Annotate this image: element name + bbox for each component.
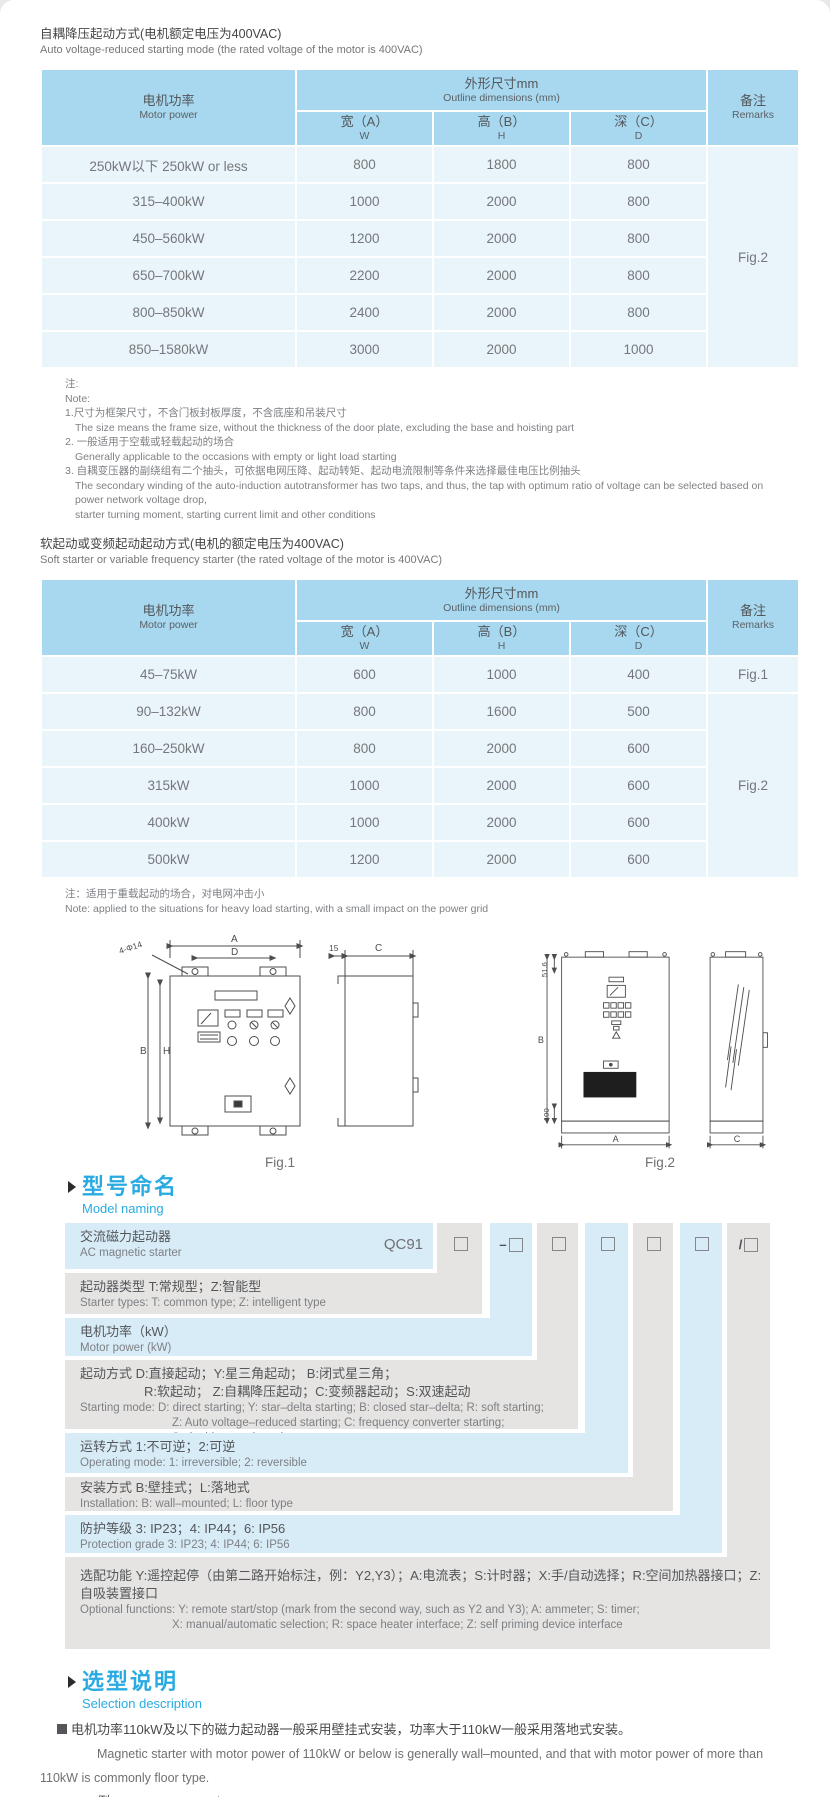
table-row: 250kW以下 250kW or less8001800800 Fig.2	[42, 147, 798, 182]
selection-description-heading: 选型说明 Selection description	[68, 1669, 792, 1712]
fig2-dim-516-label: 51.6	[540, 962, 549, 977]
code-box-square	[454, 1237, 468, 1251]
header-height: 高（B）H	[434, 622, 569, 655]
fig1-dim-h-label: H	[163, 1046, 170, 1057]
remark-fig2: Fig.2	[708, 694, 798, 877]
model-naming-title-zh: 型号命名	[82, 1174, 178, 1200]
fig1-caption: Fig.1	[110, 1155, 450, 1170]
fig2-caption: Fig.2	[510, 1155, 810, 1170]
table-row: 500kW12002000600	[42, 842, 798, 877]
naming-row-installation: 安装方式 B:壁挂式；L:落地式 Installation: B: wall–m…	[65, 1477, 673, 1511]
selection-description-body: 电机功率110kW及以下的磁力起动器一般采用壁挂式安装，功率大于110kW一般采…	[40, 1718, 792, 1797]
fig1-drawing: A D 4-Φ14 B H 15 C	[110, 928, 450, 1153]
table-row: 800–850kW24002000800	[42, 295, 798, 330]
table-row: 315–400kW10002000800	[42, 184, 798, 219]
table2-title-zh: 软起动或变频起动起动方式(电机的额定电压为400VAC)	[40, 536, 792, 553]
table-row: 650–700kW22002000800	[42, 258, 798, 293]
selection-title-zh: 选型说明	[82, 1669, 202, 1695]
fig2-dim-b-label: B	[538, 1035, 544, 1045]
note-line: Note:	[65, 392, 792, 407]
naming-stripe-6	[680, 1223, 722, 1553]
outline-drawings: A D 4-Φ14 B H 15 C Fig.1	[110, 928, 810, 1170]
selection-example: 例：QC91T-30D1B4/AS	[97, 1790, 792, 1797]
fig1-holes-label: 4-Φ14	[118, 939, 144, 956]
code-box-4	[585, 1237, 628, 1251]
figure-2: 51.6 B 100 A C Fig.2	[510, 928, 810, 1170]
fig1-dim-d-label: D	[231, 947, 238, 958]
table-row: 315kW10002000600	[42, 768, 798, 803]
code-box-square	[601, 1237, 615, 1251]
code-box-square	[509, 1238, 523, 1252]
catalog-page: 自耦降压起动方式(电机额定电压为400VAC) Auto voltage-red…	[0, 0, 830, 1797]
header-depth: 深（C）D	[571, 112, 706, 145]
naming-row-motor-power: 电机功率（kW） Motor power (kW)	[65, 1318, 532, 1356]
note-line: 1.尺寸为框架尺寸，不含门板封板厚度，不含底座和吊装尺寸	[65, 406, 792, 421]
code-box-2: –	[490, 1237, 532, 1252]
fig1-dim-a-label: A	[231, 934, 238, 945]
table-row: 400kW10002000600	[42, 805, 798, 840]
header-height: 高（B）H	[434, 112, 569, 145]
header-remarks: 备注 Remarks	[708, 70, 798, 145]
header-width: 宽（A）W	[297, 622, 432, 655]
fig2-drawing: 51.6 B 100 A C	[510, 928, 810, 1153]
table-row: 90–132kW8001600500 Fig.2	[42, 694, 798, 729]
code-box-7: /	[727, 1237, 770, 1252]
header-outline-dimensions: 外形尺寸mm Outline dimensions (mm)	[297, 580, 706, 620]
table1-title: 自耦降压起动方式(电机额定电压为400VAC) Auto voltage-red…	[40, 26, 792, 58]
remark-fig1: Fig.1	[708, 657, 798, 692]
table2-note: 注：适用于重载起动的场合，对电网冲击小 Note: applied to the…	[65, 887, 792, 916]
selection-title-en: Selection description	[82, 1695, 202, 1712]
code-box-5	[633, 1237, 673, 1251]
table1-title-zh: 自耦降压起动方式(电机额定电压为400VAC)	[40, 26, 792, 43]
fig1-dim-15-label: 15	[329, 943, 339, 953]
fig1-dim-c-label: C	[375, 943, 382, 954]
note-line: starter turning moment, starting current…	[75, 508, 792, 523]
figure-1: A D 4-Φ14 B H 15 C Fig.1	[110, 928, 450, 1170]
note-line: Generally applicable to the occasions wi…	[75, 450, 792, 465]
header-width: 宽（A）W	[297, 112, 432, 145]
code-box-square	[552, 1237, 566, 1251]
note-line: 注:	[65, 377, 792, 392]
table2-title-en: Soft starter or variable frequency start…	[40, 553, 792, 568]
naming-row-starting-mode: 起动方式 D:直接起动；Y:星三角起动； B:闭式星三角； R:软起动； Z:自…	[65, 1360, 578, 1429]
section-marker-icon	[68, 1676, 76, 1688]
header-motor-power: 电机功率 Motor power	[42, 70, 295, 145]
code-box-1	[437, 1237, 482, 1251]
header-motor-power: 电机功率 Motor power	[42, 580, 295, 655]
header-depth: 深（C）D	[571, 622, 706, 655]
note-line: 2. 一般适用于空载或轻载起动的场合	[65, 435, 792, 450]
header-remarks: 备注 Remarks	[708, 580, 798, 655]
model-code-prefix: QC91	[384, 1236, 423, 1253]
remark-fig2: Fig.2	[708, 147, 798, 367]
auto-voltage-dimension-table: 电机功率 Motor power 外形尺寸mm Outline dimensio…	[40, 68, 800, 369]
model-naming-heading: 型号命名 Model naming	[68, 1174, 792, 1217]
naming-row-product: 交流磁力起动器 AC magnetic starter QC91	[65, 1223, 433, 1269]
header-outline-dimensions: 外形尺寸mm Outline dimensions (mm)	[297, 70, 706, 110]
table2-title: 软起动或变频起动起动方式(电机的额定电压为400VAC) Soft starte…	[40, 536, 792, 568]
table-row: 850–1580kW300020001000	[42, 332, 798, 367]
table1-title-en: Auto voltage-reduced starting mode (the …	[40, 43, 792, 58]
note-line: The secondary winding of the auto-induct…	[75, 479, 792, 508]
soft-starter-dimension-table: 电机功率 Motor power 外形尺寸mm Outline dimensio…	[40, 578, 800, 879]
code-box-6	[680, 1237, 722, 1251]
model-naming-title-en: Model naming	[82, 1200, 178, 1217]
naming-row-starter-type: 起动器类型 T:常规型；Z:智能型 Starter types: T: comm…	[65, 1273, 482, 1314]
note-line: 注：适用于重载起动的场合，对电网冲击小	[65, 887, 792, 902]
fig1-dim-b-label: B	[140, 1046, 147, 1057]
note-line: Note: applied to the situations for heav…	[65, 902, 792, 917]
fig2-dim-100-label: 100	[542, 1108, 551, 1121]
selection-para-zh: 电机功率110kW及以下的磁力起动器一般采用壁挂式安装，功率大于110kW一般采…	[40, 1718, 792, 1742]
table1-notes: 注: Note: 1.尺寸为框架尺寸，不含门板封板厚度，不含底座和吊装尺寸 Th…	[65, 377, 792, 522]
code-box-square	[744, 1238, 758, 1252]
selection-para-en: Magnetic starter with motor power of 110…	[40, 1742, 792, 1790]
code-box-3	[537, 1237, 578, 1251]
model-naming-diagram: – / 交流磁力起动器 AC magnetic starter QC91 起动器…	[65, 1223, 770, 1649]
bullet-square-icon	[57, 1724, 67, 1734]
table-row: 160–250kW8002000600	[42, 731, 798, 766]
code-box-square	[695, 1237, 709, 1251]
naming-row-optional-functions: 选配功能 Y:遥控起停（由第二路开始标注，例：Y2,Y3）；A:电流表；S:计时…	[65, 1557, 770, 1649]
fig2-dim-a-label: A	[613, 1134, 620, 1144]
note-line: 3. 自耦变压器的副绕组有二个抽头，可依据电网压降、起动转矩、起动电流限制等条件…	[65, 464, 792, 479]
fig2-dim-c-label: C	[734, 1134, 741, 1144]
table-row: 45–75kW6001000400 Fig.1	[42, 657, 798, 692]
section-marker-icon	[68, 1181, 76, 1193]
note-line: The size means the frame size, without t…	[75, 421, 792, 436]
naming-row-operating-mode: 运转方式 1:不可逆；2:可逆 Operating mode: 1: irrev…	[65, 1433, 628, 1473]
naming-row-protection-grade: 防护等级 3: IP23；4: IP44；6: IP56 Protection …	[65, 1515, 722, 1553]
naming-stripe-5	[633, 1223, 673, 1511]
table-row: 450–560kW12002000800	[42, 221, 798, 256]
code-box-square	[647, 1237, 661, 1251]
